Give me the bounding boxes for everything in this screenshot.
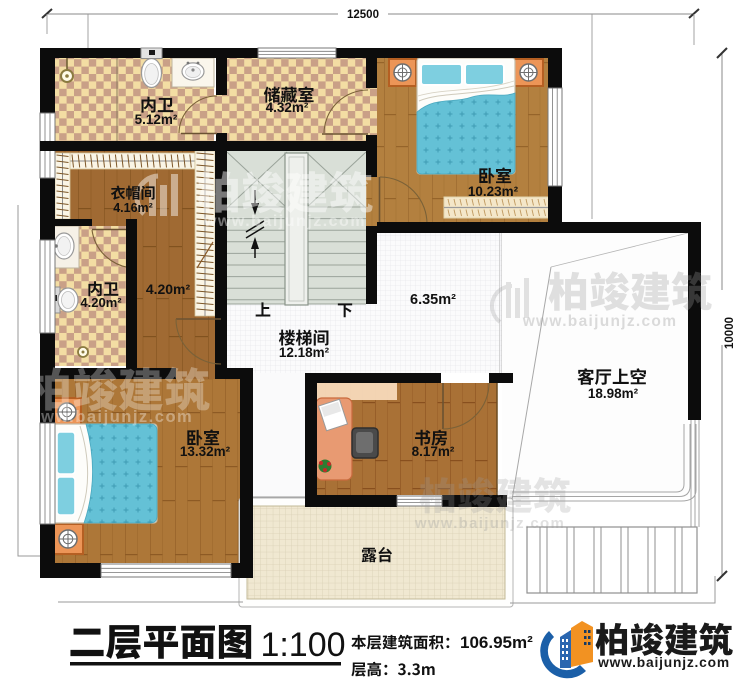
svg-text:18.98m²: 18.98m² <box>588 386 639 401</box>
svg-text:www.baijunjz.com: www.baijunjz.com <box>414 515 565 532</box>
svg-text:4.32m²: 4.32m² <box>266 100 309 115</box>
svg-text:4.20m²: 4.20m² <box>80 295 122 310</box>
svg-text:5.12m²: 5.12m² <box>135 112 178 127</box>
svg-text:6.35m²: 6.35m² <box>410 292 456 308</box>
svg-text:12.18m²: 12.18m² <box>279 345 330 360</box>
svg-text:www.baijunjz.com: www.baijunjz.com <box>597 655 730 670</box>
svg-text:8.17m²: 8.17m² <box>412 444 455 459</box>
svg-text:4.20m²: 4.20m² <box>146 281 191 297</box>
svg-text:1:100: 1:100 <box>260 626 345 664</box>
svg-text:10000: 10000 <box>724 317 736 349</box>
svg-text:www.baijunjz.com: www.baijunjz.com <box>522 313 678 330</box>
svg-text:www.baijunjz.com: www.baijunjz.com <box>203 213 366 230</box>
svg-text:13.32m²: 13.32m² <box>180 444 231 459</box>
svg-text:10.23m²: 10.23m² <box>468 184 519 199</box>
svg-text:4.16m²: 4.16m² <box>113 201 153 215</box>
svg-text:12500: 12500 <box>347 9 379 21</box>
svg-text:www.baijunjz.com: www.baijunjz.com <box>26 408 193 426</box>
svg-text:106.95m²: 106.95m² <box>460 633 533 652</box>
